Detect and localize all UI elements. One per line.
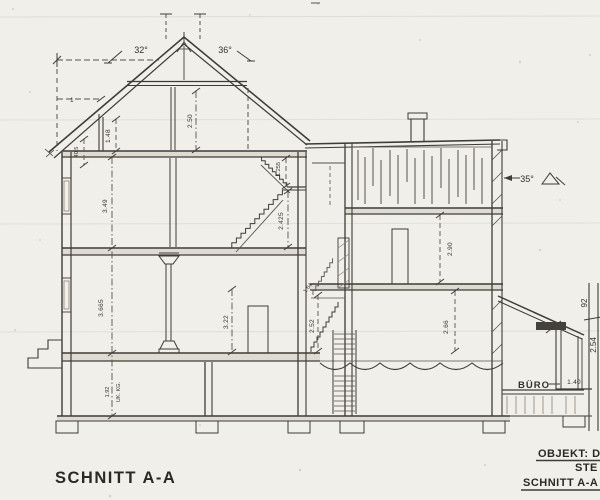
- title-block-schnitt: SCHNITT A-A: [523, 477, 598, 489]
- chimney-roof: [408, 113, 427, 141]
- annex-buero: [498, 296, 584, 414]
- titles: SCHNITT A-A OBJEKT: DES STE SCHNITT A-A: [55, 448, 600, 490]
- title-block-line2: STE: [575, 462, 598, 474]
- dim-annex-width-label: 1.40: [567, 379, 581, 386]
- section-title: SCHNITT A-A: [55, 469, 176, 487]
- window-upper-left: [62, 178, 71, 214]
- blueprint-page: 32° 36° 35° 1 2.50 1.48 40.5 3.49 3.665 …: [0, 0, 600, 500]
- title-block-objekt: OBJEKT: DES: [538, 448, 600, 460]
- annex-roof-angle-annotation: [504, 173, 565, 185]
- annex-roof-angle-label: 35°: [520, 174, 534, 184]
- chimney-upper: [338, 238, 349, 288]
- dim-eg-room-label: 3.22: [223, 315, 230, 329]
- rear-staircase: [311, 166, 345, 352]
- basement: [56, 330, 592, 433]
- building-section-drawing: 32° 36° 35° 1 2.50 1.48 40.5 3.49 3.665 …: [0, 0, 600, 500]
- window-lower-left: [62, 278, 71, 312]
- dim-attic-height-label: 2.50: [187, 114, 194, 128]
- entry-steps: [28, 340, 62, 368]
- margin-dim-upper-label: 92: [580, 298, 589, 307]
- dim-kg-note-label: UK. KG.: [116, 381, 122, 402]
- rear-upper-hatching: [358, 148, 482, 204]
- vaulted-ceiling: [320, 363, 503, 370]
- roof-angle-right-label: 36°: [218, 45, 232, 55]
- post-upper-floor: [170, 158, 176, 247]
- dim-rear-eg-height-label: 2.66: [443, 320, 450, 334]
- dim-og-height-label: 3.49: [102, 199, 109, 213]
- dim-rear-og-height-label: 2.90: [447, 242, 454, 256]
- title-block: OBJEKT: DES STE SCHNITT A-A: [521, 448, 600, 490]
- dim-rear-stair-height-label: 2.52: [309, 319, 316, 333]
- margin-dim-lower-label: 2.54: [589, 337, 598, 353]
- dim-eg-height-label: 3.665: [98, 299, 105, 317]
- roof-pitch-triangle-icon: [542, 173, 559, 184]
- dim-knee-wall-label: 1.48: [105, 129, 112, 143]
- dim-stair-lower-label: 2.425: [278, 212, 285, 230]
- main-roof: [45, 32, 310, 158]
- dim-stair-upper-label: 1.255: [276, 162, 282, 176]
- rear-building-roof: [305, 140, 507, 150]
- dim-eave-detail-label: 40.5: [74, 147, 80, 158]
- column-ground-floor: [159, 253, 179, 353]
- annex-foundation-hatch: [507, 396, 575, 414]
- main-staircase: [232, 157, 306, 252]
- right-wall-hatch: [492, 150, 502, 354]
- walls: [62, 141, 502, 416]
- room-label-buero: BÜRO: [518, 380, 550, 391]
- dim-kg-height-label: 1.92: [105, 387, 111, 398]
- floor-slabs: [62, 151, 503, 361]
- roof-angle-left-label: 32°: [134, 45, 148, 55]
- dim-overhang-label: 1: [70, 97, 74, 104]
- arrow-left-icon: [504, 175, 512, 181]
